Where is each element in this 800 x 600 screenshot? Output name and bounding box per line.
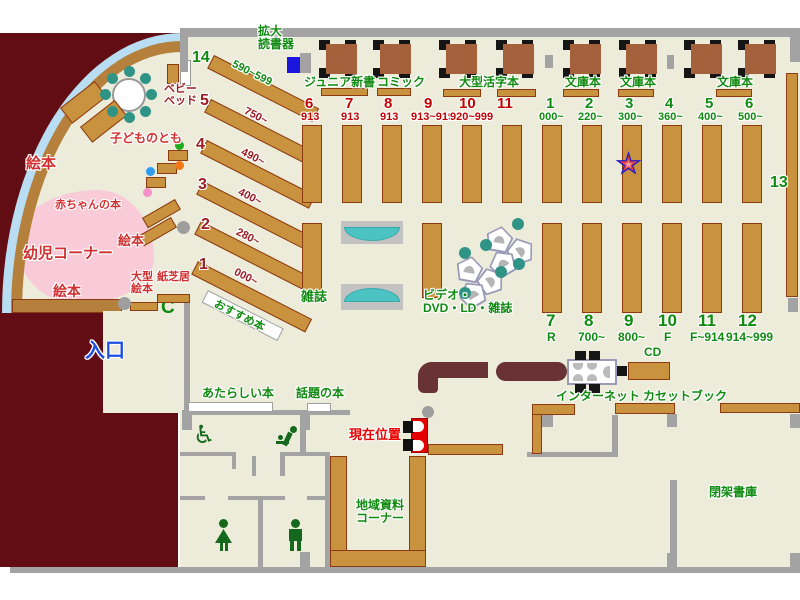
mens-toilet-icon bbox=[287, 519, 305, 552]
internet-chair bbox=[575, 351, 586, 360]
sec6-range: 913 bbox=[301, 112, 319, 124]
bookshelf bbox=[167, 64, 179, 84]
akachan-no-hon-label: 赤ちゃんの本 bbox=[55, 200, 121, 212]
bookshelf bbox=[462, 125, 482, 203]
wall bbox=[300, 410, 310, 430]
sec10b-range: F bbox=[664, 331, 671, 344]
reading-table bbox=[737, 40, 785, 78]
sec7b-num: 7 bbox=[546, 312, 555, 330]
sec9b-num: 9 bbox=[624, 312, 633, 330]
sec5g-range: 400~ bbox=[698, 112, 723, 124]
bookshelf bbox=[157, 294, 190, 303]
sec6g-range: 500~ bbox=[738, 112, 763, 124]
sec2g-num: 2 bbox=[585, 96, 593, 112]
ogata-katsuji-label: 大型活字本 bbox=[459, 76, 519, 89]
wall bbox=[612, 415, 618, 457]
sec9b-range: 800~ bbox=[618, 331, 645, 344]
wall bbox=[228, 496, 285, 500]
sec4g-range: 360~ bbox=[658, 112, 683, 124]
sec10-range: 920~999 bbox=[450, 112, 493, 124]
internet-label: インターネット bbox=[556, 390, 640, 403]
wadai-no-hon-label: 話題の本 bbox=[296, 387, 344, 400]
bookshelf bbox=[582, 125, 602, 203]
ehon-label-bottom: 絵本 bbox=[53, 284, 81, 299]
wall bbox=[300, 53, 311, 73]
woman-leg bbox=[225, 543, 228, 551]
wall bbox=[545, 55, 553, 68]
sec11-num: 11 bbox=[497, 96, 513, 112]
table-top bbox=[691, 44, 722, 74]
baby-change-icon bbox=[276, 426, 302, 452]
baby-change-table bbox=[276, 441, 289, 444]
stool-chair bbox=[480, 239, 492, 251]
magnifier-reader-device bbox=[287, 57, 301, 73]
internet-table bbox=[567, 359, 617, 385]
wall bbox=[232, 452, 236, 469]
shelf-13-num: 13 bbox=[770, 174, 788, 191]
bookshelf bbox=[582, 223, 602, 313]
wall bbox=[252, 456, 256, 476]
womens-toilet-icon bbox=[215, 519, 233, 552]
kamishibai-label: 紙芝居 bbox=[157, 272, 190, 284]
bookshelf bbox=[302, 125, 322, 203]
stool-chair bbox=[512, 218, 524, 230]
internet-seat bbox=[603, 366, 610, 378]
sec3g-range: 300~ bbox=[618, 112, 643, 124]
reading-table bbox=[318, 40, 366, 78]
sec4g-num: 4 bbox=[665, 96, 673, 112]
sec7b-range: R bbox=[547, 331, 556, 344]
bookshelf bbox=[622, 223, 642, 313]
bookshelf bbox=[532, 404, 575, 415]
stool-chair bbox=[107, 73, 118, 84]
cd-label: CD bbox=[644, 346, 661, 359]
pillar bbox=[177, 221, 190, 234]
bookshelf bbox=[662, 125, 682, 203]
wall bbox=[667, 55, 674, 69]
man-head bbox=[291, 519, 300, 528]
gate-sensor bbox=[413, 440, 424, 451]
wall bbox=[180, 452, 236, 456]
internet-seat bbox=[587, 363, 597, 370]
wall bbox=[300, 430, 306, 454]
video-dvd-label: ビデオ・ DVD・LD・雑誌 bbox=[423, 289, 512, 315]
bookshelf bbox=[146, 177, 166, 188]
bookshelf bbox=[130, 302, 158, 311]
wall bbox=[180, 496, 205, 500]
kodomo-no-tomo-label: 子どものとも bbox=[110, 132, 182, 145]
woman-leg bbox=[220, 543, 223, 551]
stool-chair bbox=[143, 188, 152, 197]
bookshelf bbox=[615, 403, 675, 414]
shelf-2-num: 2 bbox=[201, 216, 210, 233]
wall bbox=[184, 298, 190, 412]
wall bbox=[280, 452, 330, 456]
sec7-range: 913 bbox=[341, 112, 359, 124]
outside-area-below-entrance bbox=[103, 413, 178, 567]
table-top bbox=[570, 44, 601, 74]
sec8b-range: 700~ bbox=[578, 331, 605, 344]
bunkobon-label-1: 文庫本 bbox=[565, 76, 601, 89]
table-top bbox=[326, 44, 357, 74]
service-counter bbox=[496, 362, 567, 381]
sec12b-num: 12 bbox=[738, 312, 757, 330]
current-location-label: 現在位置 bbox=[349, 428, 401, 442]
sec5g-num: 5 bbox=[705, 96, 713, 112]
baby-head bbox=[278, 435, 283, 440]
internet-chair bbox=[589, 351, 600, 360]
sec10b-num: 10 bbox=[658, 312, 677, 330]
bookshelf bbox=[330, 550, 426, 567]
reading-table bbox=[683, 40, 731, 78]
wall bbox=[258, 500, 263, 567]
sec1g-range: 000~ bbox=[539, 112, 564, 124]
wall bbox=[182, 415, 192, 430]
sec10-num: 10 bbox=[459, 96, 476, 112]
bookshelf bbox=[302, 223, 322, 298]
sec11b-num: 11 bbox=[698, 312, 716, 330]
display-shelf bbox=[307, 403, 331, 412]
shelf-14-num: 14 bbox=[192, 49, 210, 66]
sec8b-num: 8 bbox=[584, 312, 593, 330]
entrance-label: 入口 bbox=[85, 341, 125, 363]
reading-table bbox=[372, 40, 420, 78]
wall bbox=[790, 37, 800, 62]
ehon-label-mid: 絵本 bbox=[118, 234, 144, 248]
gate-sensor bbox=[413, 421, 424, 432]
man-leg bbox=[290, 541, 294, 551]
bookshelf bbox=[342, 125, 362, 203]
bookshelf bbox=[542, 223, 562, 313]
internet-seat bbox=[587, 374, 597, 381]
table-top bbox=[503, 44, 534, 74]
shelf-1-num: 1 bbox=[199, 256, 208, 273]
wall bbox=[790, 553, 800, 567]
comic-label: コミック bbox=[377, 76, 425, 89]
sec6g-num: 6 bbox=[745, 96, 753, 112]
shelf-4-num: 4 bbox=[196, 136, 205, 153]
stool-chair bbox=[124, 66, 135, 77]
sec7-num: 7 bbox=[345, 96, 353, 112]
reading-table bbox=[618, 40, 666, 78]
stool-chair bbox=[175, 161, 184, 170]
man-leg bbox=[297, 541, 301, 551]
woman-head bbox=[219, 519, 228, 528]
sec1g-num: 1 bbox=[546, 96, 554, 112]
stool-chair bbox=[140, 73, 151, 84]
bookshelf bbox=[662, 223, 682, 313]
table-top bbox=[446, 44, 477, 74]
bookshelf bbox=[742, 125, 762, 203]
stool-chair bbox=[124, 112, 135, 123]
bookshelf bbox=[157, 163, 177, 174]
sec8-range: 913 bbox=[380, 112, 398, 124]
wheelchair-icon: ♿ bbox=[193, 420, 215, 450]
ehon-label-top: 絵本 bbox=[26, 156, 56, 172]
bookshelf bbox=[377, 88, 411, 96]
sec12b-range: 914~999 bbox=[726, 331, 773, 344]
stool-chair bbox=[100, 89, 111, 100]
internet-seat bbox=[573, 374, 583, 381]
bookshelf bbox=[422, 223, 442, 298]
reading-table bbox=[562, 40, 610, 78]
bookshelf bbox=[428, 444, 503, 455]
reading-table bbox=[495, 40, 543, 78]
sec2g-range: 220~ bbox=[578, 112, 603, 124]
chiiki-shiryo-label: 地域資料 コーナー bbox=[356, 499, 404, 525]
sec8-num: 8 bbox=[384, 96, 392, 112]
wall bbox=[180, 28, 188, 72]
shelf-3-num: 3 bbox=[198, 176, 207, 193]
atarashii-hon-label: あたらしい本 bbox=[202, 387, 274, 400]
table-top bbox=[380, 44, 411, 74]
stool-chair bbox=[146, 89, 157, 100]
bookshelf bbox=[422, 125, 442, 203]
pillar bbox=[118, 297, 131, 310]
sec11b-range: F~914 bbox=[690, 331, 724, 344]
display-shelf bbox=[188, 402, 273, 412]
bunkobon-label-3: 文庫本 bbox=[717, 76, 753, 89]
ogata-ehon-label: 大型 絵本 bbox=[131, 272, 153, 296]
bookshelf bbox=[563, 89, 599, 97]
bookshelf bbox=[702, 223, 722, 313]
wall bbox=[300, 552, 310, 567]
reading-table bbox=[438, 40, 486, 78]
bookshelf bbox=[542, 125, 562, 203]
wall bbox=[280, 456, 285, 476]
cassette-book-label: カセットブック bbox=[643, 390, 727, 403]
bunkobon-label-2: 文庫本 bbox=[620, 76, 656, 89]
stool-chair bbox=[140, 106, 151, 117]
table-top bbox=[745, 44, 776, 74]
service-counter bbox=[418, 362, 438, 393]
woman-dress bbox=[215, 529, 232, 543]
internet-seat bbox=[573, 363, 583, 370]
sec9-num: 9 bbox=[424, 96, 432, 112]
bookshelf bbox=[502, 125, 522, 203]
pillar bbox=[422, 406, 434, 418]
bookshelf bbox=[382, 125, 402, 203]
kakudai-dokushoki-label: 拡大 読書器 bbox=[258, 25, 294, 51]
bookshelf bbox=[168, 150, 188, 161]
sec9-range: 913~919 bbox=[411, 112, 454, 124]
stool-chair bbox=[459, 247, 471, 259]
stool-chair bbox=[146, 167, 155, 176]
bookshelf bbox=[720, 403, 800, 413]
bookshelf bbox=[702, 125, 722, 203]
youji-corner-label: 幼児コーナー bbox=[23, 246, 113, 262]
man-body bbox=[289, 529, 302, 541]
wall bbox=[542, 413, 553, 427]
junior-shinsho-label: ジュニア新書 bbox=[304, 76, 375, 89]
stool-chair bbox=[107, 106, 118, 117]
internet-side-unit bbox=[617, 366, 627, 376]
sec6-num: 6 bbox=[305, 96, 313, 112]
wall bbox=[10, 567, 800, 573]
bookshelf bbox=[618, 89, 654, 97]
bookshelf bbox=[742, 223, 762, 313]
wall bbox=[667, 553, 677, 567]
zasshi-label: 雑誌 bbox=[301, 290, 327, 304]
wall bbox=[667, 414, 677, 427]
baby-change-body bbox=[282, 432, 292, 447]
wall bbox=[788, 298, 798, 312]
shelf-5-num: 5 bbox=[200, 92, 209, 109]
stool-chair bbox=[495, 266, 507, 278]
library-floor-map: ♿ C 拡大 読書器ジュニア新書コミック大型活字本文庫本文庫本文庫本14590~… bbox=[0, 0, 800, 600]
sec3g-num: 3 bbox=[625, 96, 633, 112]
baby-bed-label: ベビー ベッド bbox=[164, 84, 197, 108]
bookshelf bbox=[628, 362, 670, 380]
wall bbox=[790, 414, 800, 428]
stool-chair bbox=[513, 258, 525, 270]
heika-shoko-label: 閉架書庫 bbox=[709, 486, 757, 499]
table-top bbox=[626, 44, 657, 74]
